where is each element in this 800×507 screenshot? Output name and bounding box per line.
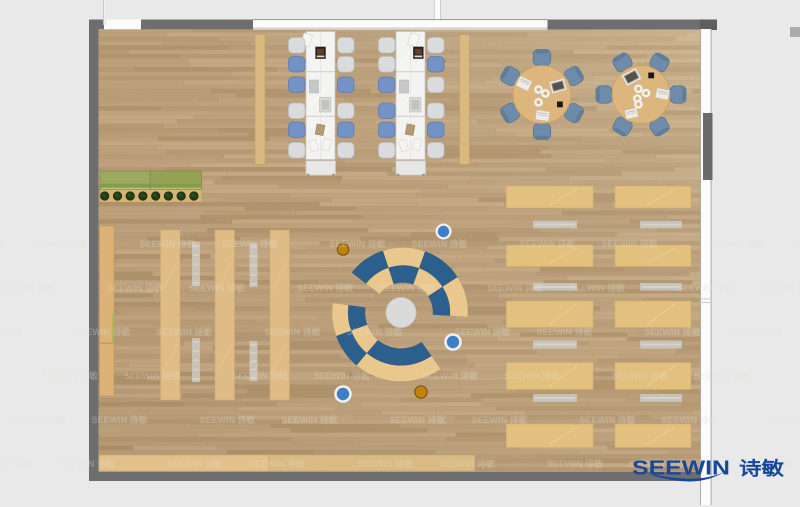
svg-text:SEEWIN 诗敏: SEEWIN 诗敏 [32, 238, 89, 249]
svg-text:SEEWIN 诗敏: SEEWIN 诗敏 [602, 238, 659, 249]
svg-text:SEEWIN 诗敏: SEEWIN 诗敏 [357, 458, 414, 469]
svg-text:SEEWIN 诗敏: SEEWIN 诗敏 [662, 414, 719, 425]
svg-text:SEEWIN 诗敏: SEEWIN 诗敏 [569, 282, 626, 293]
svg-text:SEEWIN 诗敏: SEEWIN 诗敏 [645, 326, 702, 337]
svg-text:SEEWIN 诗敏: SEEWIN 诗敏 [0, 326, 24, 337]
svg-text:SEEWIN 诗敏: SEEWIN 诗敏 [792, 238, 800, 249]
svg-text:SEEWIN 诗敏: SEEWIN 诗敏 [727, 326, 784, 337]
svg-text:SEEWIN 诗敏: SEEWIN 诗敏 [759, 282, 800, 293]
svg-text:SEEWIN 诗敏: SEEWIN 诗敏 [504, 370, 561, 381]
svg-text:SEEWIN 诗敏: SEEWIN 诗敏 [10, 414, 67, 425]
svg-text:SEEWIN 诗敏: SEEWIN 诗敏 [422, 370, 479, 381]
svg-text:SEEWIN 诗敏: SEEWIN 诗敏 [0, 282, 56, 293]
svg-text:SEEWIN 诗敏: SEEWIN 诗敏 [222, 238, 279, 249]
svg-text:SEEWIN 诗敏: SEEWIN 诗敏 [487, 282, 544, 293]
svg-text:SEEWIN 诗敏: SEEWIN 诗敏 [157, 326, 214, 337]
svg-text:SEEWIN 诗敏: SEEWIN 诗敏 [520, 238, 577, 249]
svg-text:SEEWIN 诗敏: SEEWIN 诗敏 [710, 238, 767, 249]
svg-text:SEEWIN 诗敏: SEEWIN 诗敏 [580, 414, 637, 425]
svg-text:SEEWIN 诗敏: SEEWIN 诗敏 [547, 458, 604, 469]
svg-text:SEEWIN 诗敏: SEEWIN 诗敏 [59, 458, 116, 469]
svg-text:SEEWIN 诗敏: SEEWIN 诗敏 [694, 370, 751, 381]
svg-text:SEEWIN 诗敏: SEEWIN 诗敏 [297, 282, 354, 293]
svg-text:SEEWIN 诗敏: SEEWIN 诗敏 [347, 326, 404, 337]
svg-text:SEEWIN 诗敏: SEEWIN 诗敏 [379, 282, 436, 293]
svg-text:SEEWIN 诗敏: SEEWIN 诗敏 [330, 238, 387, 249]
svg-text:SEEWIN 诗敏: SEEWIN 诗敏 [537, 326, 594, 337]
svg-text:SEEWIN 诗敏: SEEWIN 诗敏 [282, 414, 339, 425]
svg-text:SEEWIN 诗敏: SEEWIN 诗敏 [124, 370, 181, 381]
svg-text:SEEWIN 诗敏: SEEWIN 诗敏 [232, 370, 289, 381]
svg-text:SEEWIN 诗敏: SEEWIN 诗敏 [75, 326, 132, 337]
svg-text:SEEWIN 诗敏: SEEWIN 诗敏 [0, 458, 34, 469]
svg-text:SEEWIN 诗敏: SEEWIN 诗敏 [200, 414, 257, 425]
svg-text:SEEWIN 诗敏: SEEWIN 诗敏 [439, 458, 496, 469]
svg-text:诗敏: 诗敏 [739, 458, 785, 479]
svg-text:SEEWIN 诗敏: SEEWIN 诗敏 [249, 458, 306, 469]
svg-text:SEEWIN 诗敏: SEEWIN 诗敏 [92, 414, 149, 425]
svg-text:SEEWIN 诗敏: SEEWIN 诗敏 [140, 238, 197, 249]
svg-text:SEEWIN 诗敏: SEEWIN 诗敏 [167, 458, 224, 469]
svg-text:SEEWIN 诗敏: SEEWIN 诗敏 [455, 326, 512, 337]
svg-text:SEEWIN 诗敏: SEEWIN 诗敏 [42, 370, 99, 381]
svg-text:SEEWIN 诗敏: SEEWIN 诗敏 [472, 414, 529, 425]
svg-text:SEEWIN 诗敏: SEEWIN 诗敏 [677, 282, 734, 293]
svg-text:SEEWIN 诗敏: SEEWIN 诗敏 [107, 282, 164, 293]
svg-text:SEEWIN 诗敏: SEEWIN 诗敏 [770, 414, 800, 425]
svg-text:SEEWIN 诗敏: SEEWIN 诗敏 [612, 370, 669, 381]
svg-text:SEEWIN 诗敏: SEEWIN 诗敏 [412, 238, 469, 249]
svg-text:SEEWIN 诗敏: SEEWIN 诗敏 [265, 326, 322, 337]
svg-text:SEEWIN 诗敏: SEEWIN 诗敏 [390, 414, 447, 425]
svg-text:SEEWIN 诗敏: SEEWIN 诗敏 [314, 370, 371, 381]
svg-text:SEEWIN 诗敏: SEEWIN 诗敏 [189, 282, 246, 293]
